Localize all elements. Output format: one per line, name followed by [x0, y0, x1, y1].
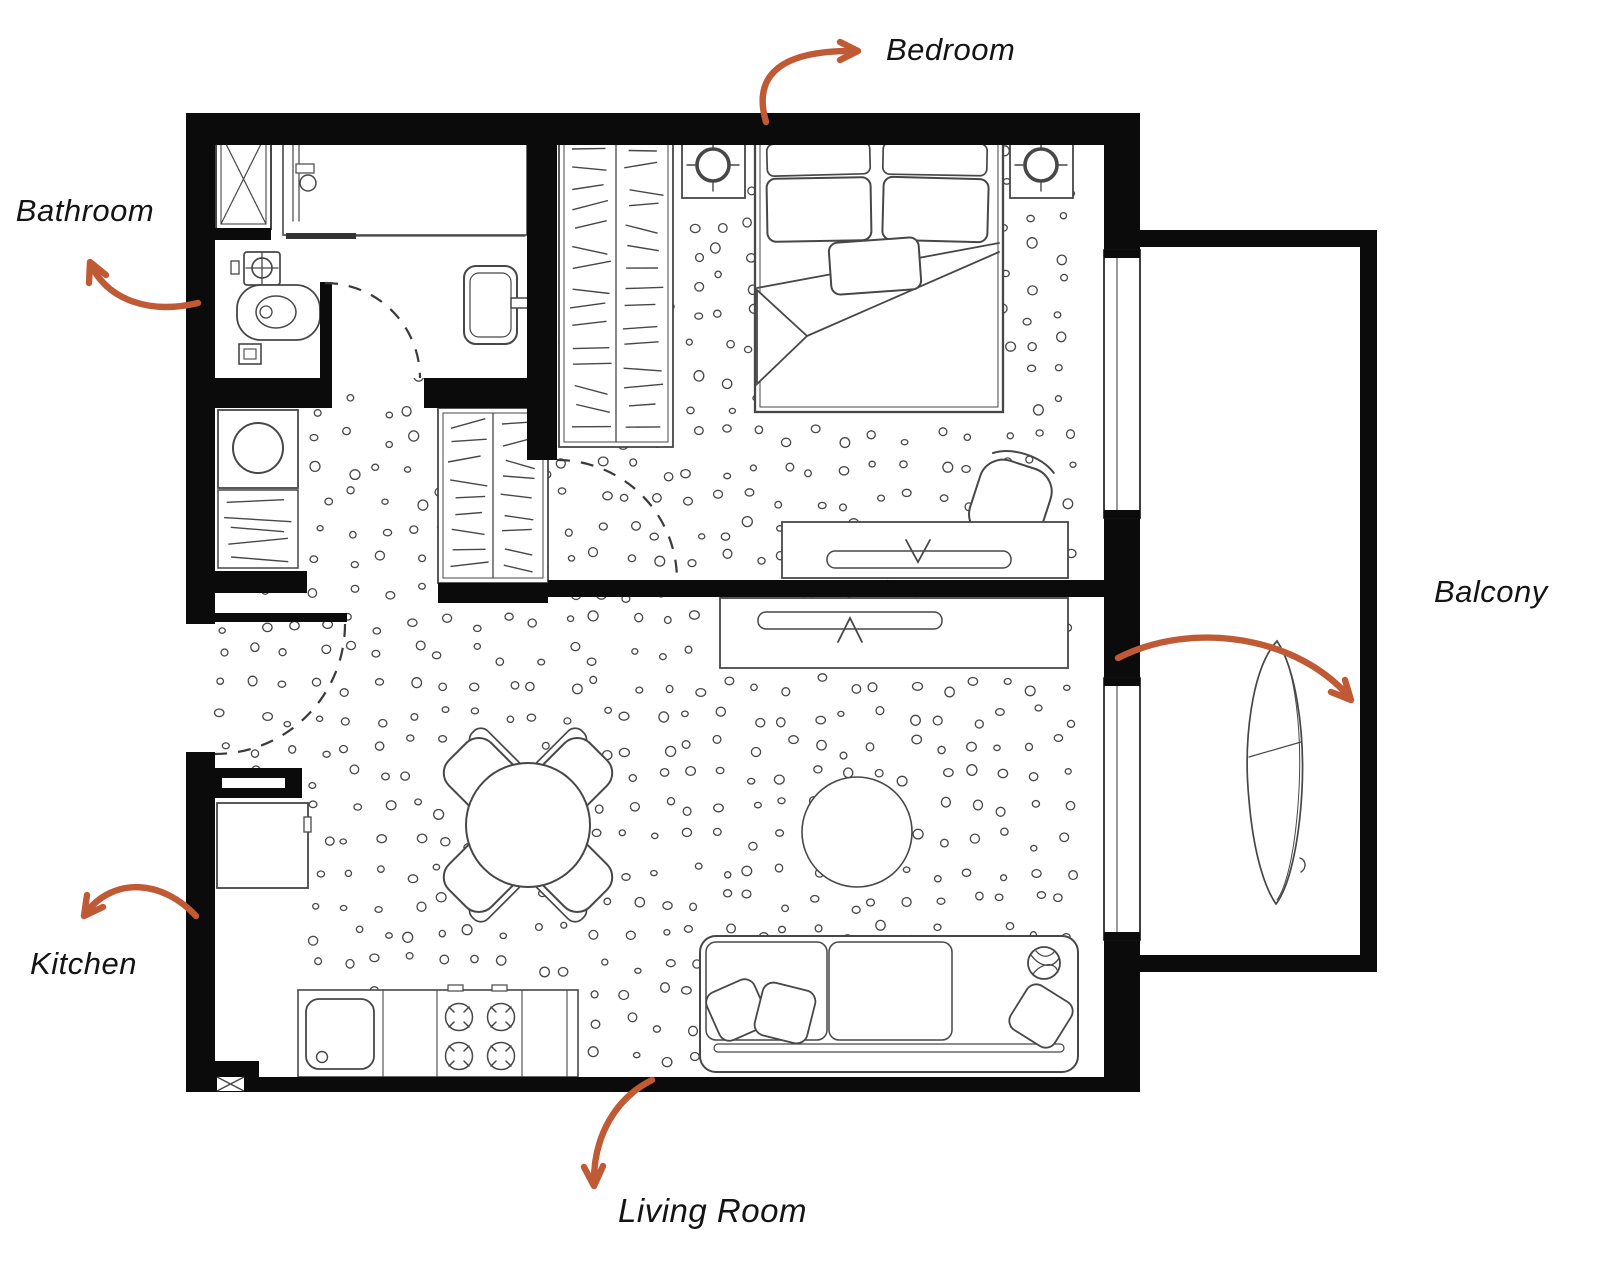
entry-threshold [217, 1077, 244, 1091]
living-tv-console [720, 598, 1068, 668]
balcony-wall-top [1104, 230, 1377, 247]
bathroom-label: Bathroom [10, 193, 160, 229]
balcony-wall-right [1360, 230, 1377, 972]
entry-door-arc [215, 624, 345, 754]
living-room-arrow [584, 1080, 652, 1186]
bedroom-wardrobe [559, 126, 673, 447]
round-rug [802, 777, 912, 887]
bedroom-arrow [763, 42, 858, 122]
dining-set [434, 724, 622, 926]
floor-plan: Bathroom Bedroom Balcony Kitchen Living … [0, 0, 1600, 1266]
ball [1028, 947, 1060, 979]
bedroom-window [1104, 250, 1140, 518]
balcony-label: Balcony [1434, 574, 1548, 610]
living-room-label: Living Room [615, 1192, 810, 1230]
sofa [700, 936, 1078, 1072]
surfboard [1247, 641, 1305, 904]
fridge [217, 803, 311, 888]
balcony-wall-bottom [1104, 955, 1377, 972]
kitchen-counter [298, 985, 578, 1077]
bedroom-label: Bedroom [886, 32, 1015, 68]
bed [755, 138, 1003, 412]
kitchen-arrow [84, 887, 196, 916]
floor-plan-svg [0, 0, 1600, 1266]
kitchen-label: Kitchen [26, 946, 141, 982]
living-window [1104, 678, 1140, 940]
balcony-arrow [1118, 638, 1351, 700]
bathroom-arrow [89, 262, 198, 307]
kitchen-pass-through [222, 778, 285, 788]
bedroom-tv-console [782, 522, 1068, 578]
